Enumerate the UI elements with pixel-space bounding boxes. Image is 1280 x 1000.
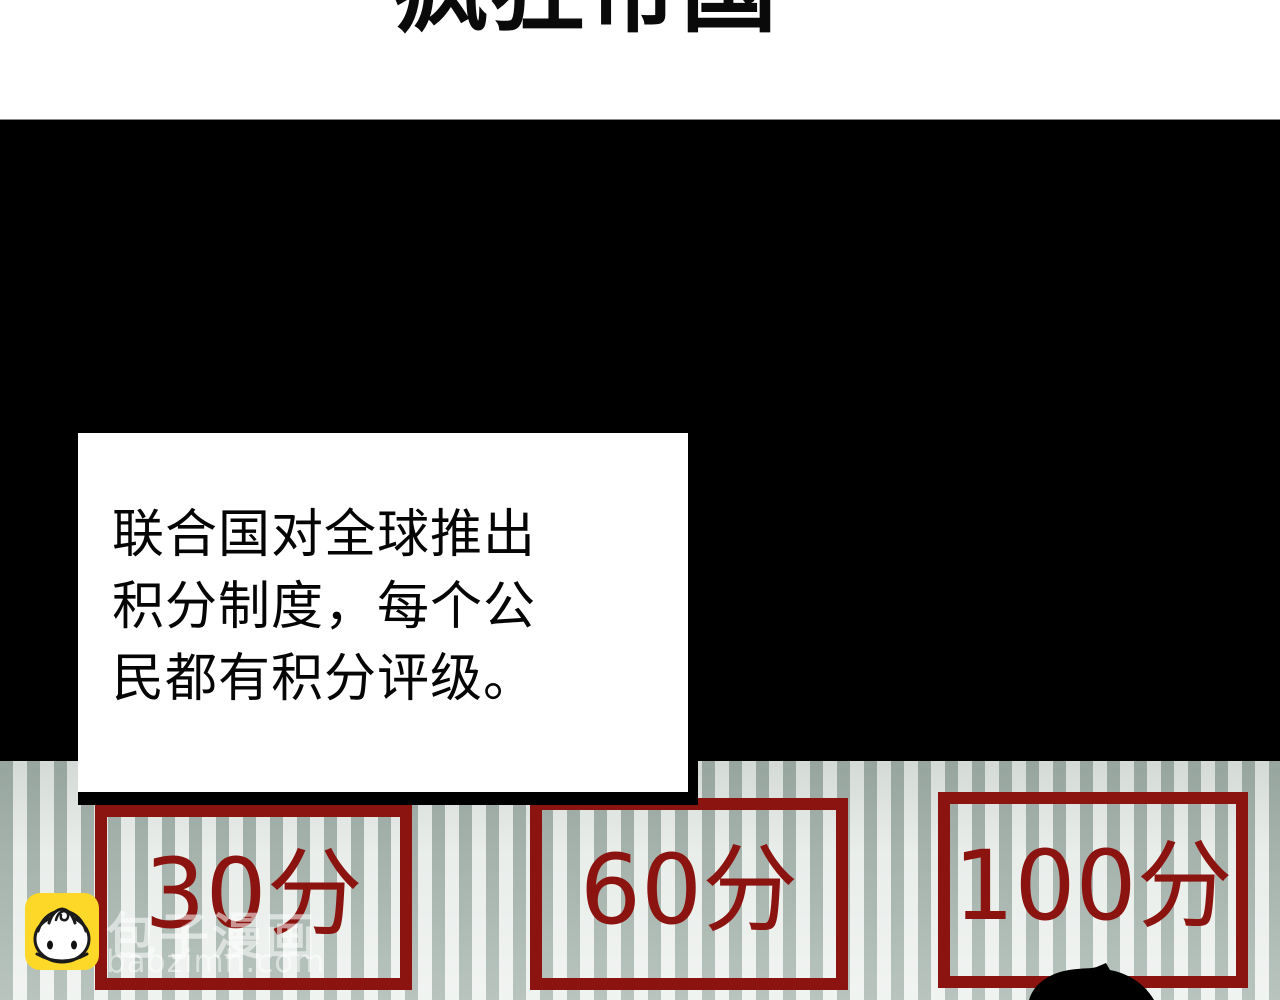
score-box-60: 60分: [530, 798, 848, 990]
comic-page: 疯狂帝国 30分 60分 100分 联合国对全球推出 积分制度，每个公 民都有积…: [0, 0, 1280, 1000]
score-box-100: 100分: [938, 792, 1248, 988]
title-strip: 疯狂帝国: [0, 0, 1280, 119]
character-head-silhouette: [1025, 963, 1170, 1000]
narration-text: 联合国对全球推出 积分制度，每个公 民都有积分评级。: [112, 499, 536, 715]
narration-line: 联合国对全球推出: [112, 499, 536, 571]
score-label: 60分: [580, 842, 798, 938]
narration-line: 民都有积分评级。: [112, 643, 536, 715]
watermark-site-domain: baozimh.com: [106, 944, 325, 980]
narration-box: 联合国对全球推出 积分制度，每个公 民都有积分评级。: [78, 433, 698, 805]
score-label: 100分: [953, 838, 1232, 934]
narration-line: 积分制度，每个公: [112, 571, 536, 643]
baozi-bun-icon: [25, 893, 99, 970]
chapter-title: 疯狂帝国: [393, 0, 777, 38]
